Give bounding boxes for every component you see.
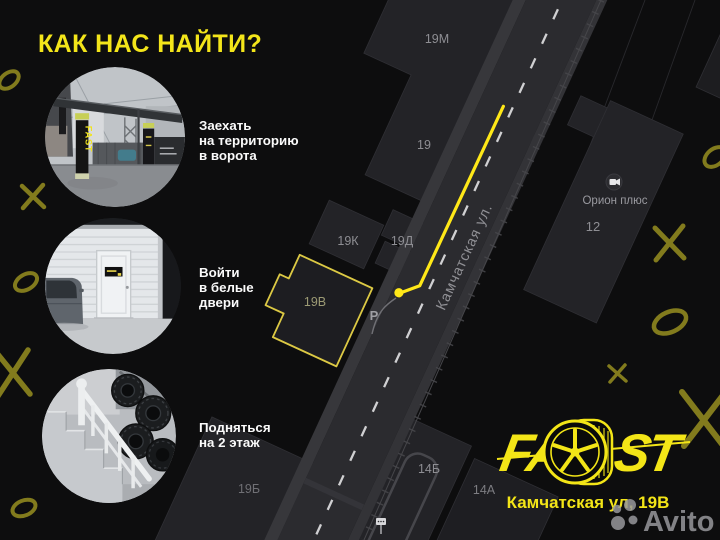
step2-text: Войти в белые двери <box>199 266 254 310</box>
fast-logo: FA ST Камчатская ул, 19В <box>496 420 690 512</box>
x-mark <box>0 350 30 396</box>
label-19: 19 <box>417 138 431 152</box>
doors-photo-illustration <box>45 218 181 354</box>
doors-scene <box>45 218 181 354</box>
gate-photo-illustration: FAST <box>45 67 185 207</box>
logo-text-st: ST <box>610 424 689 483</box>
gate-small-sign <box>75 113 89 119</box>
building-orion-12 <box>524 101 684 323</box>
label-orion: Орион плюс <box>582 195 647 207</box>
label-19d: 19Д <box>391 234 414 248</box>
label-19k: 19К <box>337 234 359 248</box>
label-19v: 19В <box>304 295 326 309</box>
step1-text: Заехать на территорию в ворота <box>199 119 299 163</box>
tire-wheel-icon <box>544 420 612 484</box>
label-19m: 19М <box>425 32 449 46</box>
x-mark <box>682 392 720 446</box>
stairs-scene <box>42 369 176 503</box>
x-mark <box>609 365 626 382</box>
label-14b: 14Б <box>418 462 440 476</box>
step3-photo-stairs <box>42 369 176 503</box>
building-corner-ne <box>696 0 720 123</box>
o-mark <box>10 497 38 520</box>
label-14a: 14А <box>473 483 496 497</box>
page-title: КАК НАС НАЙТИ? <box>38 30 262 59</box>
step1-photo-gate: FAST <box>45 67 185 207</box>
avito-text: Avito <box>643 506 714 538</box>
gate-scene: FAST <box>45 67 185 207</box>
fast-sign-text: FAST <box>84 126 94 153</box>
stairs-photo-illustration <box>42 369 176 503</box>
step3-text: Подняться на 2 этаж <box>199 421 271 451</box>
white-door <box>97 251 131 319</box>
label-12: 12 <box>586 219 600 234</box>
x-mark <box>655 226 684 260</box>
camera-icon <box>610 179 617 185</box>
x-mark <box>22 185 44 208</box>
o-mark <box>0 68 22 93</box>
label-parking: Р <box>370 308 379 323</box>
promo-image: Камчатская ул. 19М 19 19К 19Д 19В 12 14Б… <box>0 0 720 540</box>
o-mark <box>650 306 689 338</box>
o-mark <box>12 270 40 295</box>
o-mark <box>701 143 720 171</box>
label-19b: 19Б <box>238 482 260 496</box>
step2-photo-doors <box>45 218 181 354</box>
